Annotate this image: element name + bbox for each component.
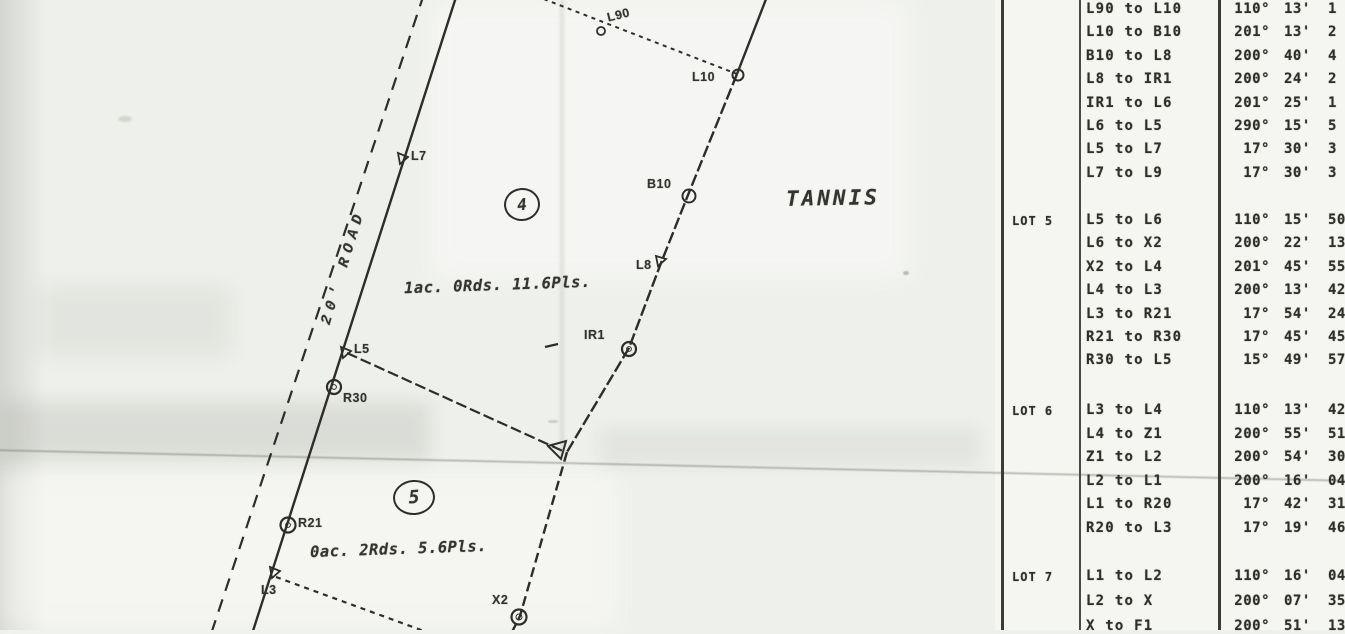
lot-group-label: LOT 6 [1012,404,1076,418]
degrees-cell: 17° [1220,329,1270,345]
r30-marker [327,380,341,394]
road-centerline-dashed [211,0,424,630]
point-label-l8: L8 [636,258,652,272]
route-cell: R30 to L5 [1086,352,1216,368]
seconds-cell: 1 [1328,95,1345,111]
minutes-cell: 25' [1284,95,1320,111]
minutes-cell: 15' [1284,212,1320,228]
degrees-cell: 200° [1220,48,1270,64]
seconds-cell: 1 [1328,1,1345,17]
degrees-cell: 200° [1220,235,1270,251]
degrees-cell: 17° [1220,496,1270,512]
route-cell: L2 to X [1086,593,1216,609]
seconds-cell: 04 [1328,473,1345,489]
minutes-cell: 45' [1284,259,1320,275]
route-cell: IR1 to L6 [1086,95,1216,111]
degrees-cell: 200° [1220,593,1270,609]
seconds-cell: 35 [1328,593,1345,609]
point-label-l3: L3 [261,583,277,597]
degrees-cell: 200° [1220,618,1270,634]
seconds-cell: 4 [1328,48,1345,64]
seconds-cell: 5 [1328,118,1345,134]
route-cell: R21 to R30 [1086,329,1216,345]
lot5-number: 5 [408,487,420,509]
route-cell: L4 to Z1 [1086,426,1216,442]
route-cell: L1 to L2 [1086,568,1216,584]
degrees-cell: 200° [1220,473,1270,489]
point-label-b10: B10 [647,177,671,191]
route-cell: R20 to L3 [1086,520,1216,536]
seconds-cell: 2 [1328,71,1345,87]
table-border-left [1001,0,1004,630]
l90-marker [597,27,605,35]
minutes-cell: 54' [1284,449,1320,465]
minutes-cell: 30' [1284,141,1320,157]
point-label-l5: L5 [354,342,370,356]
route-cell: X to F1 [1086,618,1216,634]
seconds-cell: 13 [1328,235,1345,251]
boundary-east-chain [567,74,737,452]
route-cell: L2 to L1 [1086,473,1216,489]
route-cell: L4 to L3 [1086,282,1216,298]
divider-l3-l4 [276,577,432,630]
route-cell: L7 to L9 [1086,165,1216,181]
degrees-cell: 200° [1220,71,1270,87]
route-cell: L3 to R21 [1086,306,1216,322]
point-label-l10: L10 [692,70,715,84]
route-cell: L6 to L5 [1086,118,1216,134]
boundary-l6-x2 [511,452,567,630]
degrees-cell: 290° [1220,118,1270,134]
seconds-cell: 45 [1328,329,1345,345]
tick-dash [545,344,558,347]
seconds-cell: 3 [1328,141,1345,157]
seconds-cell: 24 [1328,306,1345,322]
point-label-x2: X2 [492,593,508,607]
lot4-number: 4 [516,195,528,215]
route-cell: L3 to L4 [1086,402,1216,418]
degrees-cell: 17° [1220,141,1270,157]
route-cell: L1 to R20 [1086,496,1216,512]
boundary-top-east [737,0,768,74]
minutes-cell: 13' [1284,1,1320,17]
minutes-cell: 24' [1284,71,1320,87]
seconds-cell: 42 [1328,282,1345,298]
degrees-cell: 17° [1220,165,1270,181]
seconds-cell: 3 [1328,165,1345,181]
route-cell: L8 to IR1 [1086,71,1216,87]
seconds-cell: 30 [1328,449,1345,465]
table-divider-lot [1079,0,1081,630]
boundary-l90-l10 [536,0,737,74]
seconds-cell: 2 [1328,24,1345,40]
degrees-cell: 201° [1220,259,1270,275]
degrees-cell: 17° [1220,306,1270,322]
seconds-cell: 13 [1328,618,1345,634]
seconds-cell: 46 [1328,520,1345,536]
minutes-cell: 45' [1284,329,1320,345]
degrees-cell: 200° [1220,282,1270,298]
degrees-cell: 110° [1220,568,1270,584]
point-label-r30: R30 [343,391,367,405]
degrees-cell: 201° [1220,95,1270,111]
point-label-l7: L7 [411,149,427,163]
scanned-survey-plan: { "map": { "road_label": "20' ROAD", "re… [0,0,1345,630]
seconds-cell: 42 [1328,402,1345,418]
point-label-r21: R21 [298,516,322,530]
point-label-ir1: IR1 [584,328,605,342]
route-cell: L10 to B10 [1086,24,1216,40]
route-cell: Z1 to L2 [1086,449,1216,465]
route-cell: L6 to X2 [1086,235,1216,251]
minutes-cell: 15' [1284,118,1320,134]
route-cell: B10 to L8 [1086,48,1216,64]
degrees-cell: 201° [1220,24,1270,40]
degrees-cell: 200° [1220,449,1270,465]
lot-group-label: LOT 5 [1012,214,1076,228]
degrees-cell: 110° [1220,1,1270,17]
minutes-cell: 13' [1284,24,1320,40]
minutes-cell: 30' [1284,165,1320,181]
l3-tick [270,567,280,578]
seconds-cell: 50 [1328,212,1345,228]
minutes-cell: 19' [1284,520,1320,536]
l6-junction-marker [548,441,566,459]
minutes-cell: 42' [1284,496,1320,512]
region-label: TANNIS [786,185,880,211]
lot-group-label: LOT 7 [1012,570,1076,584]
minutes-cell: 16' [1284,473,1320,489]
minutes-cell: 13' [1284,282,1320,298]
seconds-cell: 04 [1328,568,1345,584]
minutes-cell: 07' [1284,593,1320,609]
route-cell: X2 to L4 [1086,259,1216,275]
minutes-cell: 55' [1284,426,1320,442]
seconds-cell: 57 [1328,352,1345,368]
minutes-cell: 51' [1284,618,1320,634]
minutes-cell: 54' [1284,306,1320,322]
minutes-cell: 13' [1284,402,1320,418]
route-cell: L90 to L10 [1086,1,1216,17]
divider-l5-l6 [347,353,565,452]
degrees-cell: 200° [1220,426,1270,442]
minutes-cell: 16' [1284,568,1320,584]
degrees-cell: 15° [1220,352,1270,368]
degrees-cell: 17° [1220,520,1270,536]
road-boundary-line [252,0,457,630]
seconds-cell: 51 [1328,426,1345,442]
route-cell: L5 to L7 [1086,141,1216,157]
degrees-cell: 110° [1220,402,1270,418]
minutes-cell: 22' [1284,235,1320,251]
minutes-cell: 49' [1284,352,1320,368]
route-cell: L5 to L6 [1086,212,1216,228]
seconds-cell: 31 [1328,496,1345,512]
minutes-cell: 40' [1284,48,1320,64]
degrees-cell: 110° [1220,212,1270,228]
seconds-cell: 55 [1328,259,1345,275]
